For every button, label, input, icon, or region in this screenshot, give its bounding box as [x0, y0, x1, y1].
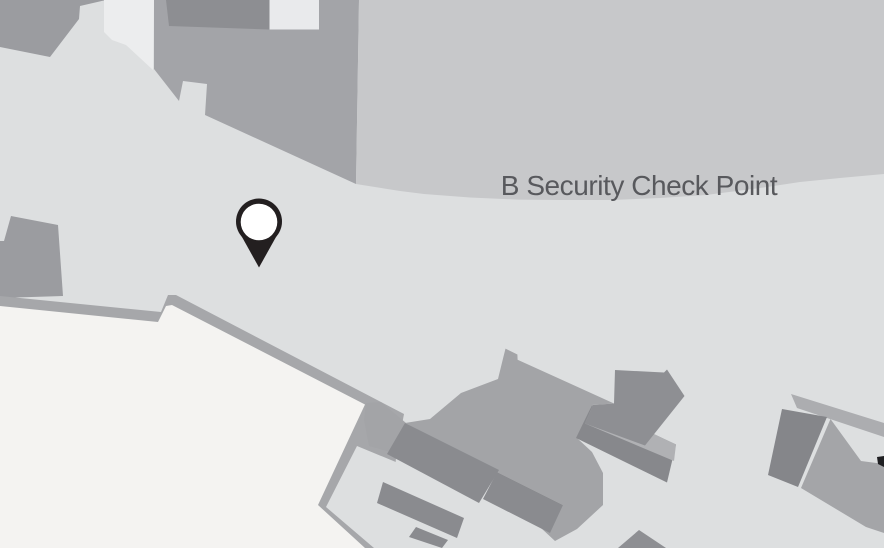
svg-text:B Security Check Point: B Security Check Point [501, 170, 778, 201]
